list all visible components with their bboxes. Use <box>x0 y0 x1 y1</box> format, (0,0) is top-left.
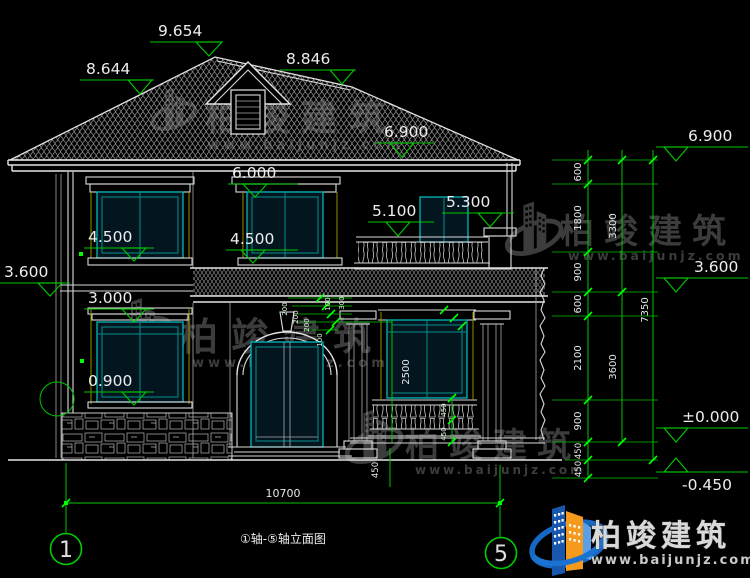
axis-number-1: 1 <box>59 538 73 563</box>
level-text: ±0.000 <box>682 408 739 426</box>
dim-450e: 450 <box>440 427 448 440</box>
level-text: 4.500 <box>88 228 132 246</box>
column-shaft-right <box>483 324 501 441</box>
level-roof-left: 8.644 <box>80 60 154 94</box>
dim-3300: 3300 <box>608 213 619 238</box>
porch-rail-top <box>372 400 477 405</box>
grip-dot <box>80 359 84 363</box>
dim-450b: 450 <box>574 461 584 477</box>
dim-200b: 200 <box>292 310 300 323</box>
watermark-brand: 柏竣建筑 <box>560 212 736 252</box>
detail-callout-circle <box>40 382 74 416</box>
dim-200a: 200 <box>281 302 289 315</box>
dim-7350: 7350 <box>640 297 651 322</box>
level-floor2-right: 3.600 <box>656 258 748 292</box>
level-text: 3.600 <box>694 258 738 276</box>
level-text: -0.450 <box>682 476 732 494</box>
window-head-molding2 <box>236 184 336 192</box>
level-text: 0.900 <box>88 372 132 390</box>
dim-2100: 2100 <box>573 345 584 370</box>
grip-dot <box>79 252 83 256</box>
window-2f-left <box>86 177 194 265</box>
balcony-balusters <box>358 242 486 263</box>
level-text: 8.644 <box>86 60 130 78</box>
level-text: 6.900 <box>384 123 428 141</box>
right-level-markers: 6.900 3.600 ±0.000 -0.450 <box>656 127 748 494</box>
window-sill <box>88 402 192 408</box>
dim-450a: 450 <box>574 443 584 459</box>
left-wall <box>68 172 73 413</box>
level-text: 5.300 <box>446 193 490 211</box>
level-text: 3.600 <box>4 263 48 281</box>
window-sill <box>88 258 192 265</box>
level-floor2-left: 3.600 <box>0 263 70 296</box>
dim-450c: 450 <box>371 462 381 478</box>
bottom-dimension: 10700 1 5 ①轴-⑤轴立面图 <box>51 463 517 569</box>
right-wall-2f <box>507 163 512 236</box>
dim-450d: 450 <box>440 403 448 416</box>
level-text: 5.100 <box>372 202 416 220</box>
entry-door <box>251 342 323 447</box>
grip-dot <box>64 501 68 505</box>
window-1f-left <box>88 308 192 408</box>
dim-100a: 100 <box>324 297 332 310</box>
column-abacus-right <box>474 311 510 319</box>
dim-300: 300 <box>338 296 346 309</box>
dim-100b: 100 <box>316 333 324 346</box>
dim-1800: 1800 <box>573 205 584 230</box>
dim-2500: 2500 <box>401 359 412 384</box>
brand-logo: 柏竣建筑 www.baijunjz.com <box>527 505 750 576</box>
level-ground: -0.450 <box>656 458 748 494</box>
dim-600b: 600 <box>573 294 584 313</box>
window-1f-right-head <box>378 310 476 320</box>
entry-steps <box>228 447 352 456</box>
porch-roof-band <box>190 268 548 302</box>
cad-elevation-drawing: 柏竣建筑 www.baijunjz.com 柏竣建筑 www.baijunjz.… <box>0 0 750 578</box>
level-win1-head: 3.000 <box>84 289 154 322</box>
apron-tiles <box>193 268 545 296</box>
brand-site: www.baijunjz.com <box>591 553 750 568</box>
level-text: 4.500 <box>230 230 274 248</box>
level-text: 6.000 <box>232 164 276 182</box>
drawing-title: ①轴-⑤轴立面图 <box>240 531 326 546</box>
porch-balusters <box>373 405 476 429</box>
axis-number-5: 5 <box>494 542 508 567</box>
level-ridge: 9.654 <box>150 22 222 56</box>
dim-10700: 10700 <box>266 487 301 500</box>
level-text: 8.846 <box>286 50 330 68</box>
level-eave-right: 6.900 <box>656 127 748 161</box>
level-text: 6.900 <box>688 127 732 145</box>
dim-900a: 900 <box>573 262 584 281</box>
drawing-svg: 柏竣建筑 www.baijunjz.com 柏竣建筑 www.baijunjz.… <box>0 0 750 578</box>
dim-900b: 900 <box>573 411 584 430</box>
column-capital-right <box>478 319 506 324</box>
brand-name: 柏竣建筑 <box>591 519 731 554</box>
window-head-molding2 <box>90 184 190 192</box>
level-text: 3.000 <box>88 289 132 307</box>
dim-3600: 3600 <box>608 354 619 379</box>
dim-200c: 200 <box>303 318 311 331</box>
level-text: 9.654 <box>158 22 202 40</box>
level-zero: ±0.000 <box>656 408 748 442</box>
grip-dot <box>498 501 502 505</box>
dim-600a: 600 <box>573 162 584 181</box>
window-head-molding <box>86 177 194 184</box>
stone-base <box>62 413 232 460</box>
watermark-right: 柏竣建筑 www.baijunjz.com <box>503 202 744 263</box>
